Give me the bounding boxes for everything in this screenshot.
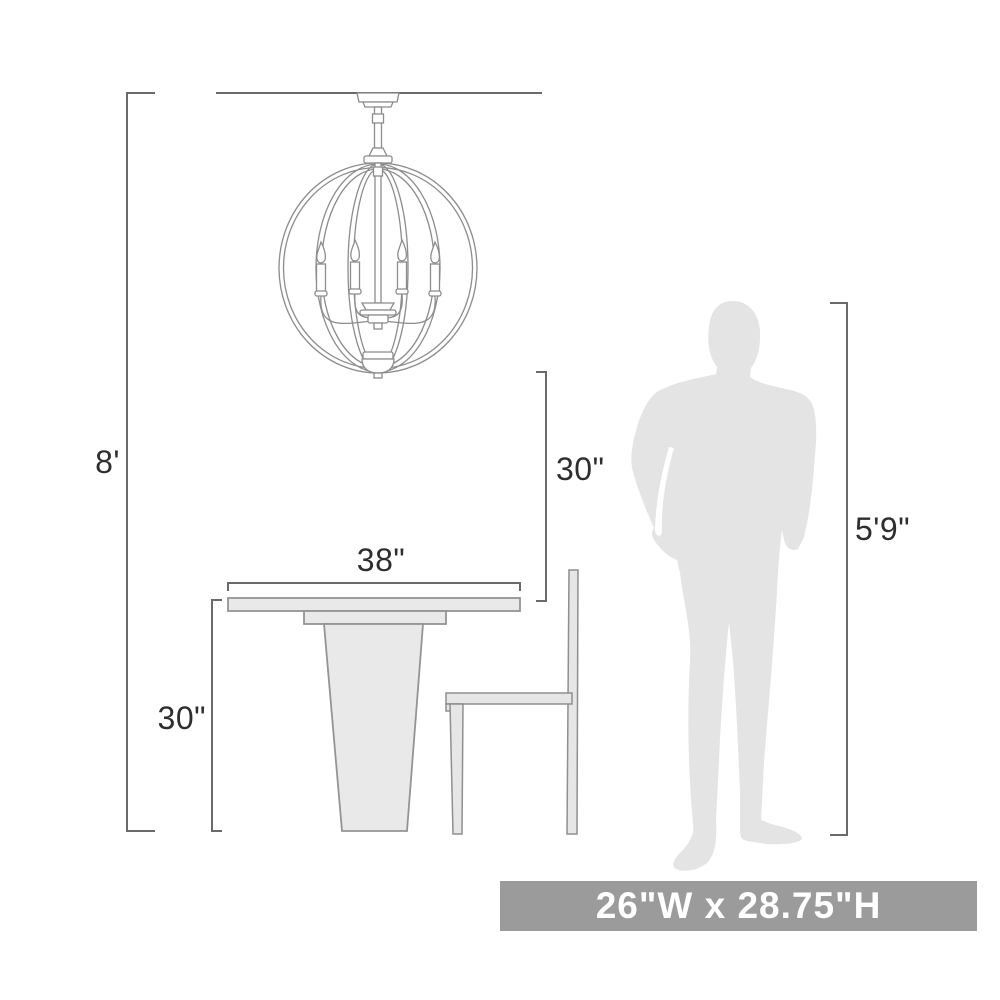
chair-seat xyxy=(446,693,572,704)
dim-table-height-bracket xyxy=(212,600,222,831)
table-drawing xyxy=(228,598,520,831)
bobeche xyxy=(362,303,394,310)
dim-table-width-bracket xyxy=(228,583,520,591)
canopy xyxy=(357,93,399,102)
flame xyxy=(317,242,326,263)
dim-clearance-bracket xyxy=(536,372,546,601)
person-silhouette xyxy=(631,301,816,871)
label-ceiling-height: 8' xyxy=(70,446,120,480)
downrod xyxy=(375,107,382,148)
dimension-diagram: 8' 30" 38" 30" 5'9" 26"W x 28.75"H xyxy=(0,0,1000,1000)
finial-plate xyxy=(363,352,393,359)
label-table-height: 30" xyxy=(140,702,206,736)
stem-coupler xyxy=(374,167,383,176)
diagram-line-art xyxy=(0,0,1000,1000)
table-top xyxy=(228,598,520,611)
cluster-stub xyxy=(374,323,382,329)
canopy-base xyxy=(363,102,393,107)
bobeche-plate xyxy=(360,310,396,315)
dim-person-height-bracket xyxy=(830,303,847,835)
chandelier-drawing xyxy=(279,93,477,378)
top-collar xyxy=(364,156,392,163)
table-apron xyxy=(304,611,446,624)
flame xyxy=(398,240,407,261)
size-banner: 26"W x 28.75"H xyxy=(500,881,977,931)
fitter-cone xyxy=(369,148,387,156)
downrod-coupler xyxy=(373,114,384,123)
table-pedestal xyxy=(324,624,423,831)
center-stem xyxy=(375,163,381,303)
cluster-hub xyxy=(368,315,388,323)
flame xyxy=(351,240,360,261)
label-table-width: 38" xyxy=(331,544,431,578)
chair-front-leg xyxy=(450,704,463,834)
finial-stub xyxy=(374,373,382,378)
label-person-height: 5'9" xyxy=(855,513,910,547)
label-fixture-to-table: 30" xyxy=(556,453,604,487)
